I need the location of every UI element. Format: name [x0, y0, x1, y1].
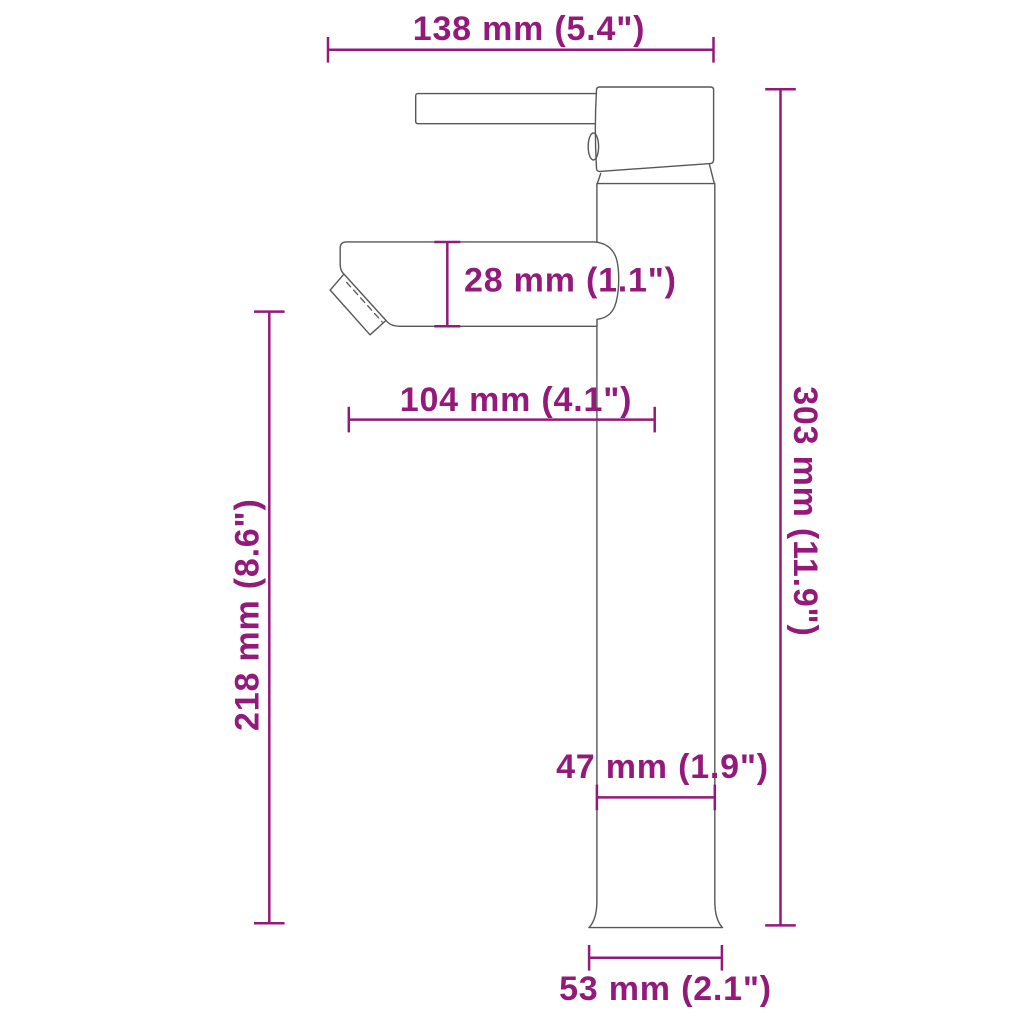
- svg-text:218 mm (8.6"): 218 mm (8.6"): [229, 498, 267, 731]
- svg-text:138 mm (5.4"): 138 mm (5.4"): [413, 10, 646, 48]
- svg-text:28 mm (1.1"): 28 mm (1.1"): [464, 262, 677, 300]
- svg-text:53 mm (2.1"): 53 mm (2.1"): [559, 970, 772, 1008]
- svg-text:47 mm (1.9"): 47 mm (1.9"): [556, 748, 769, 786]
- svg-text:104 mm (4.1"): 104 mm (4.1"): [400, 381, 633, 419]
- svg-text:303 mm (11.9"): 303 mm (11.9"): [786, 386, 824, 636]
